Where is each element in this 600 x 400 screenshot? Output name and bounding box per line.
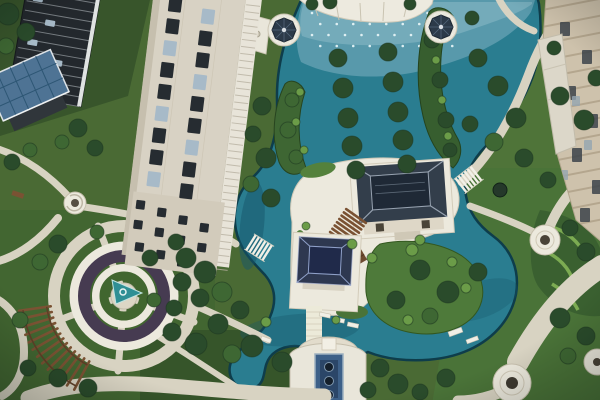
tree [69,119,87,137]
tree [173,273,191,291]
fountain-jet [335,45,338,48]
tree [577,243,595,261]
window [572,148,582,162]
tree [560,348,576,364]
tree [212,282,232,302]
fountain-jet [335,23,338,26]
window [584,140,592,150]
window [154,105,169,121]
fountain-jet [352,23,355,26]
window [133,220,143,230]
fountain-jet [319,23,322,26]
window [178,215,188,225]
tree [367,253,377,263]
tree [302,222,310,230]
tree [296,88,304,96]
fountain-jet [319,45,322,48]
tree [166,300,182,316]
tree [437,369,455,387]
path-node-east [530,225,560,255]
tree [163,323,181,341]
round-planter [493,183,507,197]
aerial-courtyard-photo [0,0,600,400]
fountain-jet [311,12,314,15]
window [201,8,216,24]
scene-canvas [0,0,600,400]
tree [550,308,570,328]
tree [147,293,161,307]
fountain-jet [451,45,454,48]
dome-finial [439,25,443,29]
fountain-jet [401,23,404,26]
fountain-jet [360,34,363,37]
tree [412,384,428,400]
tree [332,316,340,324]
tree [551,87,569,105]
tree [23,143,37,157]
tree [347,239,357,249]
tree [223,345,241,363]
tree [506,108,526,128]
tree [515,149,533,167]
tree [245,126,261,142]
tree [262,189,280,207]
window [582,50,592,64]
tree [465,11,479,25]
gazebo-east [425,11,457,43]
tree [333,78,353,98]
gazebo-west [268,14,300,46]
tree [300,146,308,154]
tree [547,41,561,55]
fountain-jet [352,45,355,48]
tree [406,244,418,256]
tree [540,172,556,188]
tree [360,382,376,398]
tree [90,225,104,239]
tree [32,254,48,270]
window [187,118,202,134]
tree [432,72,448,88]
fountain-jet [385,23,388,26]
tree [256,148,276,168]
window [168,0,183,13]
fountain-jet [410,34,413,37]
window [193,74,208,90]
tree [4,154,20,170]
tree [393,130,413,150]
tree [462,116,478,132]
fountain-jet [368,23,371,26]
window [152,127,167,143]
fountain-pillar [322,338,336,350]
window [157,84,172,100]
tree [79,379,97,397]
window [198,30,213,46]
fountain-jet [393,34,396,37]
window [199,223,209,233]
fountain-jet [418,23,421,26]
tree [388,374,408,394]
tree [329,49,347,67]
tree [577,327,595,345]
tree [469,49,487,67]
tree [383,72,403,92]
tree [398,155,416,173]
tree [488,76,508,96]
tree [415,235,425,245]
fountain-basin [325,363,334,372]
window [195,52,210,68]
tree [342,136,362,156]
tree [306,0,318,10]
fountain-jet [401,45,404,48]
tree [432,56,440,64]
tree [438,112,454,128]
window [592,180,600,194]
tree [253,97,271,115]
fountain-basin [325,377,334,386]
fountain-jet [377,34,380,37]
tree [0,3,19,25]
window [157,207,167,217]
tree [388,102,408,122]
tree [208,314,228,334]
tree [485,133,503,151]
tree [272,352,292,372]
tree [371,359,389,377]
tree [176,248,196,268]
tree [379,43,397,61]
window [179,183,194,199]
tree [443,143,457,157]
window [190,96,205,112]
tree [49,235,67,253]
window [182,161,197,177]
window [134,242,144,252]
window [184,139,199,155]
window [160,62,175,78]
tree [0,38,14,54]
window [580,208,590,222]
tree [20,360,36,376]
window [572,96,580,106]
pavilion-north-skylight [370,172,430,210]
tree [168,234,184,250]
dome-finial [282,28,286,32]
tree [12,312,28,328]
tree [422,308,438,324]
pavilion-south-skylight [308,246,341,275]
tree [231,301,249,319]
tree [438,96,446,104]
fountain-jet [327,34,330,37]
window [135,200,145,210]
tree [191,289,209,307]
tree [574,110,594,130]
path-node-southeast [493,364,531,400]
path-node-west [64,192,86,214]
tree [338,108,358,128]
tree [292,118,300,126]
tree [55,135,69,149]
fountain-jet [311,34,314,37]
tree [142,250,158,266]
tree [185,333,207,355]
window [154,227,164,237]
window [197,243,207,253]
tree [447,257,457,267]
tree [323,0,337,9]
tree [243,176,259,192]
fountain-jet [344,34,347,37]
pavilion-north-door [376,223,385,232]
tree [387,291,405,309]
tree [562,220,578,236]
window [162,40,177,56]
tree [444,132,452,140]
tree [261,317,271,327]
tree [49,369,67,387]
window [149,149,164,165]
tree [241,335,263,357]
tree [461,283,471,293]
tree [87,140,103,156]
window [146,171,161,187]
pavilion-north-door [421,220,430,229]
tree [403,315,413,325]
fountain-jet [368,45,371,48]
tree [404,0,416,10]
window [165,18,180,34]
tree [194,261,216,283]
tree [588,70,600,86]
tree [437,281,459,303]
tree [469,263,487,281]
tree [347,161,365,179]
tree [410,260,430,280]
tree [17,23,35,41]
